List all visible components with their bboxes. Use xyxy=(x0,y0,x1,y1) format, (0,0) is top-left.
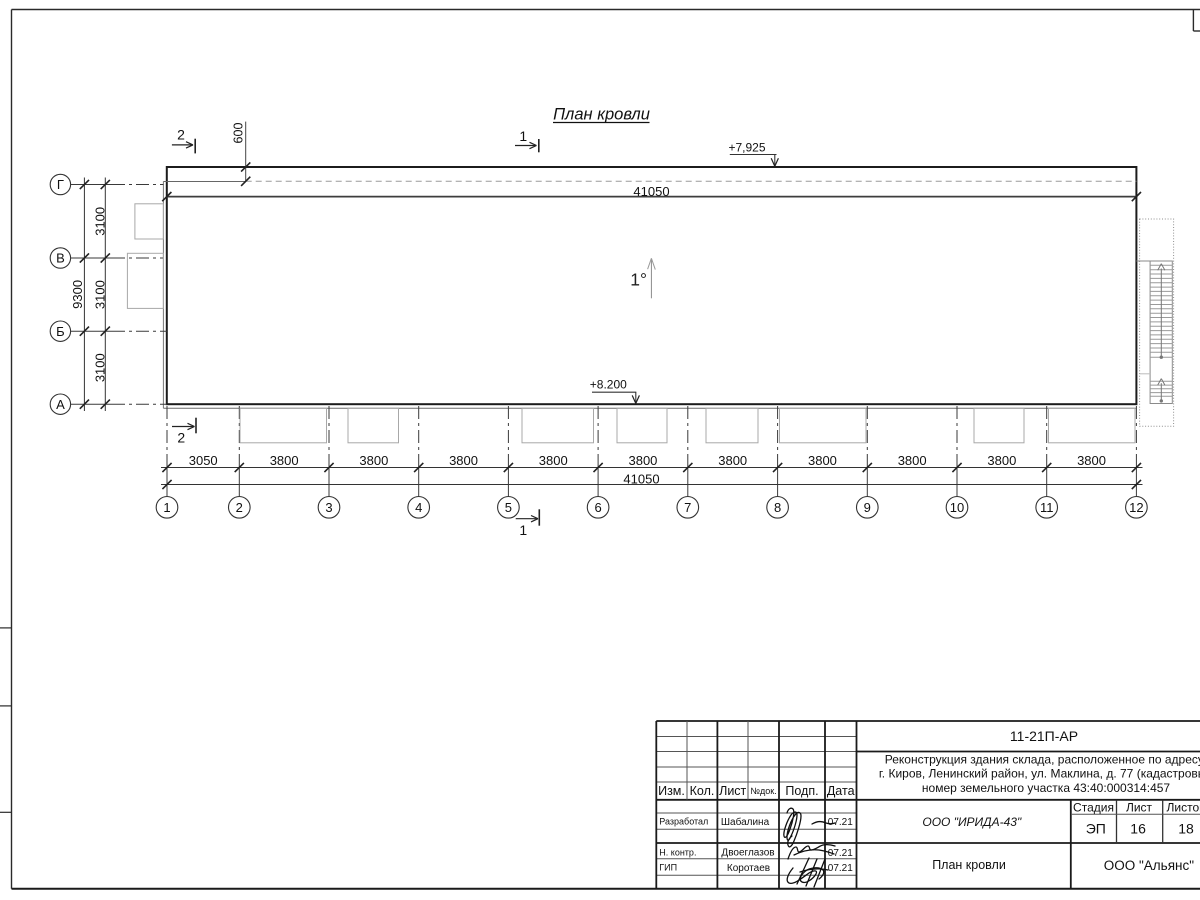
svg-text:№док.: №док. xyxy=(750,786,776,796)
svg-text:2: 2 xyxy=(236,500,243,515)
svg-text:3800: 3800 xyxy=(539,453,568,468)
svg-text:+8.200: +8.200 xyxy=(590,378,627,392)
svg-text:16: 16 xyxy=(1130,821,1146,837)
svg-text:41050: 41050 xyxy=(633,184,669,199)
svg-text:Коротаев: Коротаев xyxy=(727,863,770,874)
svg-text:1: 1 xyxy=(163,500,170,515)
svg-text:Н. контр.: Н. контр. xyxy=(659,847,696,857)
svg-text:ЭП: ЭП xyxy=(1086,821,1106,837)
svg-text:Двоеглазов: Двоеглазов xyxy=(721,848,774,859)
svg-text:В: В xyxy=(56,251,65,266)
svg-text:10: 10 xyxy=(950,500,964,515)
svg-text:4: 4 xyxy=(415,500,422,515)
svg-text:Стадия: Стадия xyxy=(1073,801,1114,815)
svg-text:3800: 3800 xyxy=(359,453,388,468)
svg-text:9300: 9300 xyxy=(70,280,85,309)
svg-text:Лист: Лист xyxy=(1126,801,1153,815)
svg-text:Реконструкция здания склада, р: Реконструкция здания склада, расположенн… xyxy=(885,753,1200,767)
svg-text:номер земельного участка 43:40: номер земельного участка 43:40:000314:45… xyxy=(922,781,1171,795)
svg-text:3800: 3800 xyxy=(718,453,747,468)
svg-text:План кровли: План кровли xyxy=(553,105,650,123)
svg-text:3100: 3100 xyxy=(93,207,108,236)
svg-text:3800: 3800 xyxy=(270,453,299,468)
svg-text:11-21П-АР: 11-21П-АР xyxy=(1010,728,1078,744)
svg-text:ГИП: ГИП xyxy=(659,863,677,873)
svg-text:18: 18 xyxy=(1178,821,1194,837)
svg-text:8: 8 xyxy=(774,500,781,515)
svg-text:9: 9 xyxy=(864,500,871,515)
svg-text:ООО "ИРИДА-43": ООО "ИРИДА-43" xyxy=(922,815,1022,829)
svg-text:1°: 1° xyxy=(630,270,647,290)
svg-text:11: 11 xyxy=(1040,500,1054,515)
svg-text:ООО "Альянс": ООО "Альянс" xyxy=(1104,858,1194,873)
svg-text:3800: 3800 xyxy=(628,453,657,468)
svg-text:3100: 3100 xyxy=(93,353,108,382)
svg-text:600: 600 xyxy=(231,123,245,144)
svg-text:+7,925: +7,925 xyxy=(728,140,765,154)
svg-text:3800: 3800 xyxy=(1077,453,1106,468)
svg-text:5: 5 xyxy=(505,500,512,515)
svg-text:12: 12 xyxy=(1129,500,1143,515)
svg-text:3800: 3800 xyxy=(898,453,927,468)
svg-text:2: 2 xyxy=(177,429,185,445)
svg-text:07.21: 07.21 xyxy=(828,863,853,874)
svg-text:1: 1 xyxy=(519,128,527,144)
svg-text:Г: Г xyxy=(57,177,64,192)
svg-text:2: 2 xyxy=(177,127,185,143)
svg-text:3050: 3050 xyxy=(189,453,218,468)
svg-text:Лист: Лист xyxy=(719,784,746,798)
svg-text:А: А xyxy=(56,397,65,412)
svg-text:7: 7 xyxy=(684,500,691,515)
svg-text:1: 1 xyxy=(519,522,527,538)
svg-text:41050: 41050 xyxy=(623,471,659,486)
svg-text:г. Киров, Ленинский район, ул.: г. Киров, Ленинский район, ул. Маклина, … xyxy=(879,767,1200,781)
svg-text:3100: 3100 xyxy=(93,280,108,309)
svg-text:План кровли: План кровли xyxy=(932,858,1006,872)
svg-text:Кол.: Кол. xyxy=(690,784,715,798)
svg-text:Дата: Дата xyxy=(827,784,855,798)
svg-text:07.21: 07.21 xyxy=(828,817,853,828)
svg-text:3800: 3800 xyxy=(987,453,1016,468)
svg-text:Б: Б xyxy=(56,324,65,339)
svg-text:3: 3 xyxy=(325,500,332,515)
svg-text:Шабалина: Шабалина xyxy=(721,816,770,828)
svg-text:Изм.: Изм. xyxy=(658,784,685,798)
svg-text:Разработал: Разработал xyxy=(659,816,708,826)
svg-text:Листов: Листов xyxy=(1167,801,1200,815)
svg-text:3800: 3800 xyxy=(808,453,837,468)
svg-text:6: 6 xyxy=(594,500,601,515)
svg-text:3800: 3800 xyxy=(449,453,478,468)
svg-text:Подп.: Подп. xyxy=(785,784,818,798)
